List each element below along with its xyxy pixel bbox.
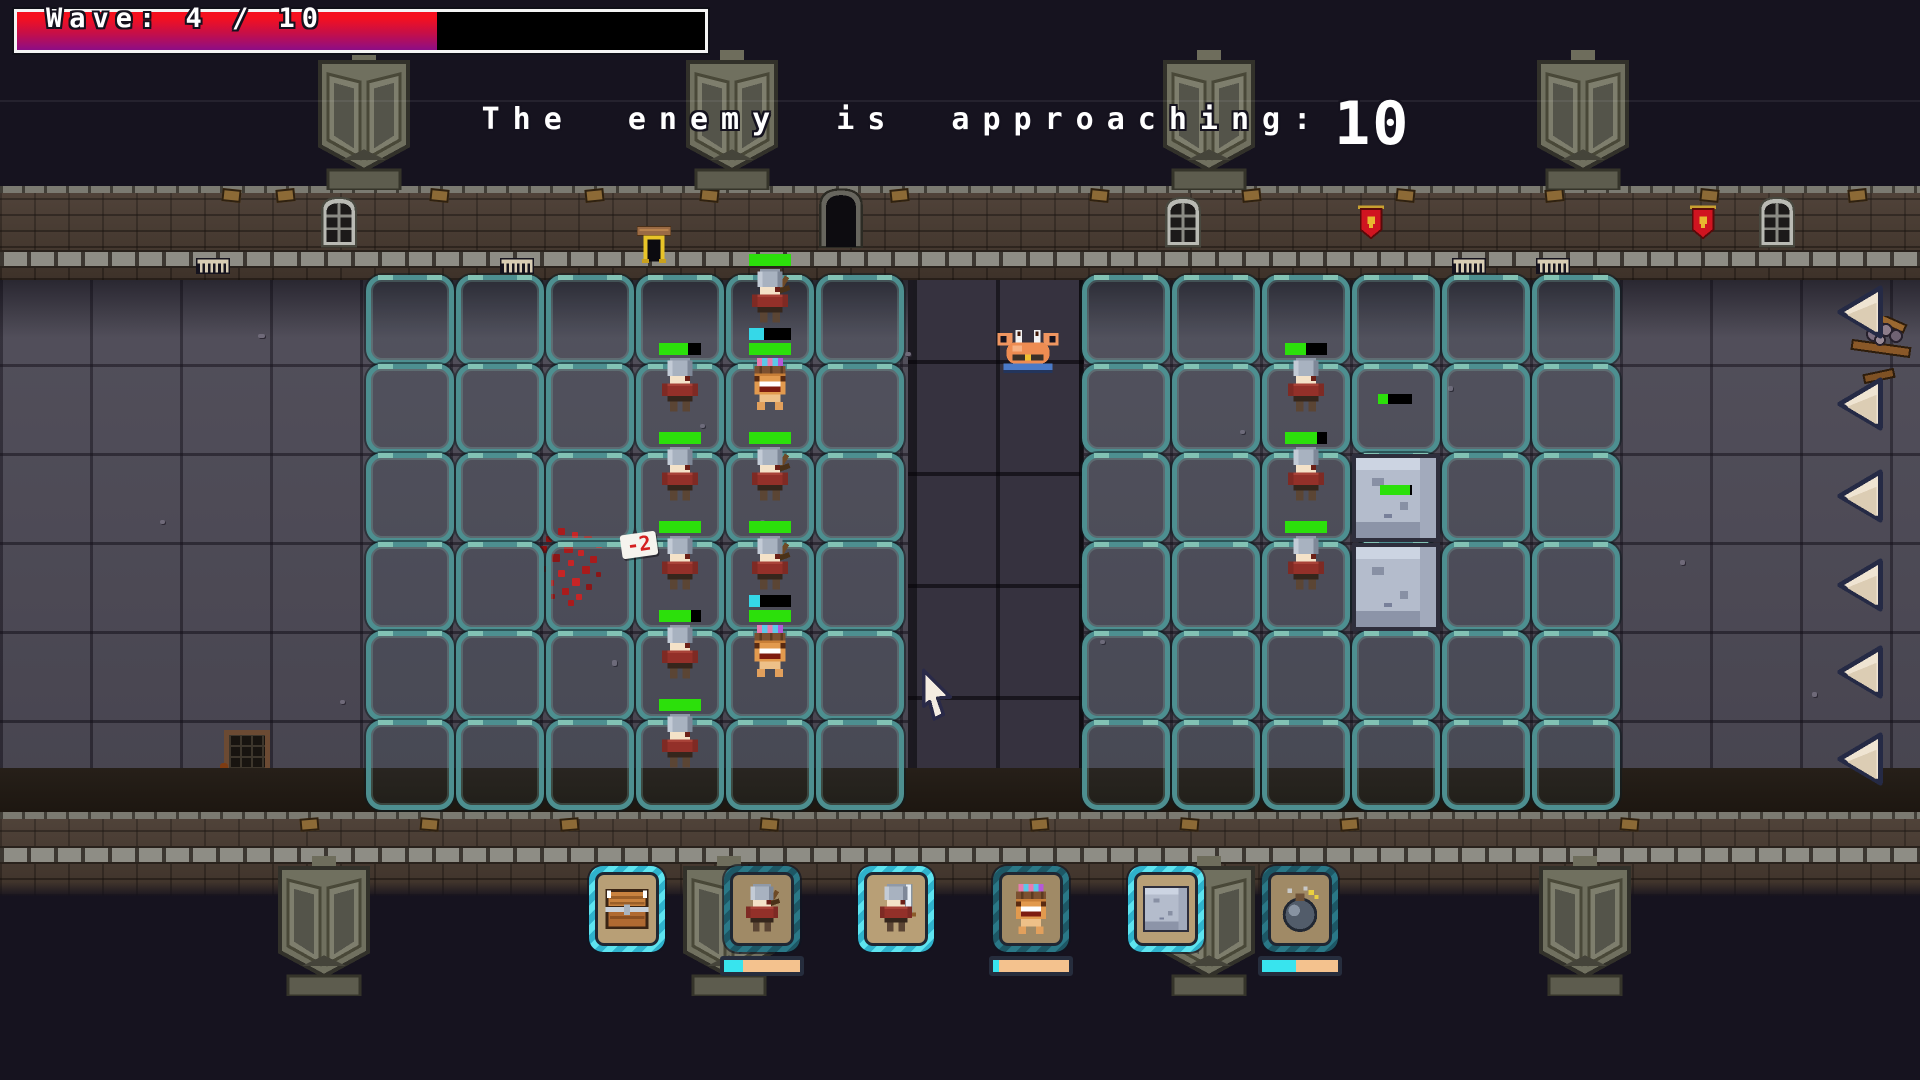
placement-cell[interactable]	[1082, 720, 1170, 810]
torch-sconce	[889, 188, 909, 203]
stone-block[interactable]	[1352, 454, 1440, 542]
archer-knight-sprite	[749, 269, 791, 325]
unit-totem[interactable]	[747, 328, 793, 410]
foot-knight-sprite	[659, 625, 701, 681]
placement-cell[interactable]	[1532, 631, 1620, 721]
placement-cell[interactable]	[1172, 453, 1260, 543]
left-arrow-icon	[1834, 283, 1886, 341]
placement-cell[interactable]	[1172, 275, 1260, 365]
dungeon-floor	[0, 280, 1920, 812]
red-banner	[1688, 204, 1718, 248]
health-fill	[749, 610, 791, 622]
health-bar	[749, 254, 791, 266]
unit-foot-knight[interactable]	[1283, 343, 1329, 414]
announcement: The enemy is approaching: 10	[0, 86, 1906, 154]
torch-sconce	[1241, 188, 1261, 203]
placement-cell[interactable]	[1082, 542, 1170, 632]
barred-window	[1756, 192, 1798, 250]
scroll-left-arrow-button[interactable]	[1834, 643, 1886, 701]
health-bar	[749, 610, 791, 622]
stone-block-icon	[1143, 884, 1189, 934]
health-bar	[1285, 343, 1327, 355]
health-fill	[1380, 485, 1410, 495]
placement-cell[interactable]	[1532, 364, 1620, 454]
torch-sconce	[1847, 188, 1867, 203]
torch-sconce	[275, 188, 295, 203]
unit-archer-knight[interactable]	[747, 521, 793, 592]
torch-sconce	[1179, 817, 1199, 832]
placement-cell[interactable]	[366, 364, 454, 454]
placement-cell[interactable]	[1082, 364, 1170, 454]
health-fill	[659, 343, 688, 355]
placement-cell[interactable]	[456, 631, 544, 721]
placement-cell[interactable]	[1172, 631, 1260, 721]
scroll-left-arrow-button[interactable]	[1834, 283, 1886, 341]
placement-cell[interactable]	[546, 542, 634, 632]
card-face	[1137, 875, 1195, 943]
wall-vent	[1452, 258, 1486, 274]
placement-cell[interactable]	[816, 542, 904, 632]
torch-sconce	[419, 817, 439, 832]
health-fill	[749, 521, 791, 533]
card-face	[1002, 875, 1060, 943]
foot-knight-sprite	[659, 714, 701, 770]
sword-knight-icon	[873, 884, 919, 934]
health-bar	[659, 343, 701, 355]
placement-cell[interactable]	[546, 453, 634, 543]
pebble	[160, 520, 165, 524]
pebble	[258, 334, 265, 338]
torch-sconce	[221, 188, 241, 203]
health-bar	[749, 432, 791, 444]
cooldown-fill	[993, 960, 999, 972]
placement-cell[interactable]	[366, 275, 454, 365]
foot-knight-sprite	[659, 358, 701, 414]
mana-bar	[749, 328, 791, 340]
placement-cell[interactable]	[546, 631, 634, 721]
mouse-cursor	[920, 668, 960, 726]
pebble	[905, 352, 911, 356]
wall-vent	[196, 258, 230, 274]
placement-cell[interactable]	[456, 364, 544, 454]
wave-label: Wave: 4 / 10	[46, 3, 325, 34]
placement-cell[interactable]	[1532, 453, 1620, 543]
health-fill	[659, 699, 701, 711]
totem-sprite	[749, 625, 791, 677]
health-bar	[749, 521, 791, 533]
card-face	[1271, 875, 1329, 943]
toolbar-card-block[interactable]	[1128, 866, 1204, 952]
placement-cell[interactable]	[1442, 631, 1530, 721]
health-bar	[1285, 432, 1327, 444]
left-arrow-icon	[1834, 467, 1886, 525]
toolbar-card-chest[interactable]	[589, 866, 665, 952]
pebble	[340, 700, 345, 704]
torch-sconce	[1339, 817, 1359, 832]
stone-block[interactable]	[1352, 543, 1440, 631]
placement-cell[interactable]	[1172, 364, 1260, 454]
unit-foot-knight[interactable]	[657, 343, 703, 414]
health-bar	[659, 432, 701, 444]
unit-foot-knight[interactable]	[1283, 432, 1329, 503]
card-frame	[730, 872, 794, 946]
left-arrow-icon	[1834, 643, 1886, 701]
placement-cell[interactable]	[366, 453, 454, 543]
left-arrow-icon	[1834, 375, 1886, 433]
placement-cell[interactable]	[1442, 275, 1530, 365]
stone-course	[0, 250, 1920, 268]
torch-sconce	[559, 817, 579, 832]
crab-enemy[interactable]	[997, 330, 1059, 376]
mana-fill	[749, 328, 764, 340]
scroll-left-arrow-button[interactable]	[1834, 730, 1886, 788]
torch-sconce	[429, 188, 449, 203]
placement-cell[interactable]	[1442, 364, 1530, 454]
damage-popup: -2	[620, 531, 659, 560]
torch-sconce	[1699, 188, 1719, 203]
torch-sconce	[1619, 817, 1639, 832]
gate-door	[1533, 856, 1637, 996]
placement-cell[interactable]	[1172, 720, 1260, 810]
unit-foot-knight[interactable]	[657, 432, 703, 503]
placement-cell[interactable]	[1352, 364, 1440, 454]
card-face	[867, 875, 925, 943]
placement-cell[interactable]	[546, 364, 634, 454]
archer-knight-icon	[739, 884, 785, 934]
placement-cell[interactable]	[816, 275, 904, 365]
placement-cell[interactable]	[1082, 275, 1170, 365]
placement-cell[interactable]	[1352, 631, 1440, 721]
torch-sconce	[1029, 817, 1049, 832]
gate-door	[272, 856, 376, 996]
card-frame	[1134, 872, 1198, 946]
health-bar	[659, 610, 701, 622]
health-fill	[749, 254, 791, 266]
gold-alcove	[637, 226, 671, 266]
totem-icon	[1008, 884, 1054, 934]
placement-cell[interactable]	[1442, 542, 1530, 632]
health-bar	[749, 343, 791, 355]
barred-window	[1162, 192, 1204, 250]
chest-icon	[604, 884, 650, 934]
placement-cell[interactable]	[1352, 720, 1440, 810]
unit-totem[interactable]	[747, 595, 793, 677]
small-health-bar	[1378, 394, 1412, 404]
card-face	[598, 875, 656, 943]
cooldown-fill	[724, 960, 743, 972]
barred-window	[318, 192, 360, 250]
torch-sconce	[759, 817, 779, 832]
placement-cell[interactable]	[1532, 720, 1620, 810]
card-frame	[1268, 872, 1332, 946]
placement-cell[interactable]	[1262, 631, 1350, 721]
health-fill	[749, 343, 791, 355]
health-fill	[1378, 394, 1388, 404]
health-fill	[1285, 521, 1327, 533]
unit-archer-knight[interactable]	[747, 432, 793, 503]
placement-cell[interactable]	[1172, 542, 1260, 632]
countdown-number: 10	[1334, 86, 1410, 154]
foot-knight-sprite	[1285, 447, 1327, 503]
placement-cell[interactable]	[1442, 720, 1530, 810]
placement-cell[interactable]	[366, 631, 454, 721]
cooldown-bar	[989, 956, 1073, 976]
unit-foot-knight[interactable]	[1283, 521, 1329, 592]
toolbar-card-swordsman[interactable]	[858, 866, 934, 952]
foot-knight-sprite	[659, 447, 701, 503]
block-health-bar	[1380, 485, 1412, 495]
placement-cell[interactable]	[1532, 275, 1620, 365]
card-face	[733, 875, 791, 943]
torch-sconce	[299, 817, 319, 832]
pebble	[1680, 560, 1685, 565]
archer-knight-sprite	[749, 447, 791, 503]
health-bar	[1285, 521, 1327, 533]
health-bar	[659, 521, 701, 533]
placement-cell[interactable]	[816, 720, 904, 810]
placement-cell[interactable]	[456, 453, 544, 543]
unit-foot-knight[interactable]	[657, 699, 703, 770]
placement-cell[interactable]	[1082, 453, 1170, 543]
cooldown-bar	[1258, 956, 1342, 976]
card-frame	[595, 872, 659, 946]
placement-cell[interactable]	[1262, 720, 1350, 810]
health-fill	[659, 521, 701, 533]
card-frame	[864, 872, 928, 946]
card-frame	[999, 872, 1063, 946]
placement-cell[interactable]	[726, 720, 814, 810]
torch-sconce	[1544, 188, 1564, 203]
torch-sconce	[584, 188, 604, 203]
mana-fill	[749, 595, 760, 607]
scroll-left-arrow-button[interactable]	[1834, 467, 1886, 525]
placement-cell[interactable]	[366, 720, 454, 810]
announcement-text: The enemy is approaching:	[482, 86, 1325, 137]
placement-cell[interactable]	[1082, 631, 1170, 721]
game-screen: -2 Wave: 4 / 10 The enemy is approaching…	[0, 0, 1920, 1080]
placement-cell[interactable]	[546, 275, 634, 365]
health-fill	[1285, 432, 1317, 444]
toolbar-card-bomb[interactable]	[1262, 866, 1338, 952]
unit-archer-knight[interactable]	[747, 254, 793, 325]
wall-vent	[500, 258, 534, 274]
placement-cell[interactable]	[546, 720, 634, 810]
torch-sconce	[1395, 188, 1415, 203]
unit-foot-knight[interactable]	[657, 610, 703, 681]
placement-cell[interactable]	[1442, 453, 1530, 543]
placement-cell[interactable]	[816, 631, 904, 721]
foot-knight-sprite	[1285, 358, 1327, 414]
cooldown-fill	[1262, 960, 1296, 972]
placement-cell[interactable]	[456, 275, 544, 365]
unit-foot-knight[interactable]: -2	[657, 521, 703, 592]
left-arrow-icon	[1834, 730, 1886, 788]
red-banner	[1356, 204, 1386, 248]
mana-bar	[749, 595, 791, 607]
placement-cell[interactable]	[816, 364, 904, 454]
dark-archway	[818, 186, 864, 248]
totem-sprite	[749, 358, 791, 410]
scroll-left-arrow-button[interactable]	[1834, 556, 1886, 614]
toolbar-card-archer[interactable]	[724, 866, 800, 952]
scroll-left-arrow-button[interactable]	[1834, 375, 1886, 433]
health-fill	[659, 432, 701, 444]
placement-cell[interactable]	[816, 453, 904, 543]
health-fill	[1285, 343, 1306, 355]
wall-vent	[1536, 258, 1570, 274]
torch-sconce	[1089, 188, 1109, 203]
placement-cell[interactable]	[456, 542, 544, 632]
bomb-icon	[1277, 884, 1323, 934]
placement-cell[interactable]	[366, 542, 454, 632]
placement-cell[interactable]	[456, 720, 544, 810]
placement-cell[interactable]	[1532, 542, 1620, 632]
pebble	[1812, 692, 1817, 697]
cooldown-bar	[720, 956, 804, 976]
toolbar-card-totem[interactable]	[993, 866, 1069, 952]
top-wall	[0, 186, 1920, 280]
health-bar	[659, 699, 701, 711]
placement-cell[interactable]	[1352, 275, 1440, 365]
archer-knight-sprite	[749, 536, 791, 592]
left-arrow-icon	[1834, 556, 1886, 614]
health-fill	[659, 610, 691, 622]
torch-sconce	[699, 188, 719, 203]
health-fill	[749, 432, 791, 444]
foot-knight-sprite	[1285, 536, 1327, 592]
foot-knight-sprite	[659, 536, 701, 592]
